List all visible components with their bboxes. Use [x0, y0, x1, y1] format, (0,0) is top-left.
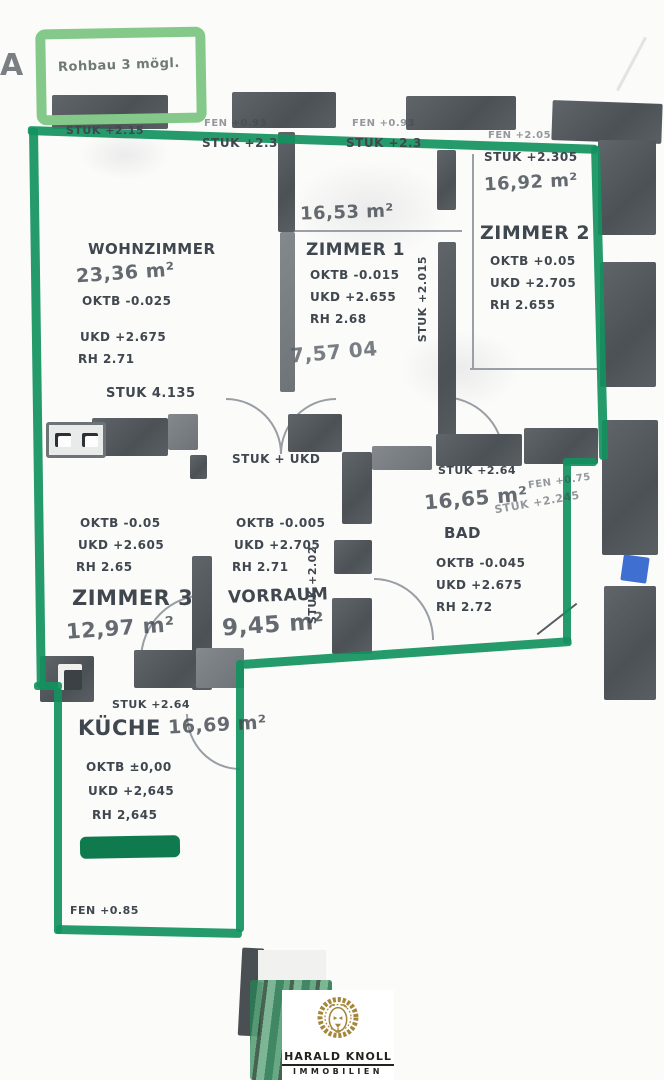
stub-cap — [258, 950, 326, 982]
annotation-stuk-mid: STUK 4.135 — [106, 386, 196, 401]
wall-segment — [600, 262, 656, 387]
logo-subtitle: IMMOBILIEN — [293, 1067, 383, 1076]
pencil-line — [286, 230, 462, 232]
outlet-dot — [82, 433, 98, 447]
outline-kitchen-left — [54, 688, 62, 934]
room-area-vorraum: 9,45 m² — [221, 608, 325, 641]
zimmer3-oktb: OKTB -0.05 — [80, 516, 161, 530]
bad-ukd: UKD +2.675 — [436, 578, 522, 592]
zimmer1-note: 7,57 04 — [289, 336, 378, 368]
door-arc — [374, 578, 434, 640]
zimmer2-oktb: OKTB +0.05 — [490, 254, 576, 268]
annotation-stuk-vertical-1: STUK +2.015 — [416, 256, 429, 342]
wall-segment — [278, 132, 295, 232]
room-area-wohnzimmer: 23,36 m² — [75, 259, 175, 288]
annotation-stuk-1: STUK +2.3 — [202, 136, 278, 150]
wall-segment — [288, 414, 342, 452]
wall-segment — [168, 414, 198, 450]
outline-kitchen-bottom — [56, 925, 242, 938]
bad-oktb: OKTB -0.045 — [436, 556, 525, 570]
outlet-dot — [55, 433, 71, 447]
zimmer1-rh: RH 2.68 — [310, 312, 367, 326]
wohnzimmer-ukd: UKD +2.675 — [80, 330, 166, 344]
lion-icon — [307, 990, 369, 1050]
bad-fen: FEN +0.75 — [528, 472, 592, 492]
logo-name: HARALD KNOLL — [282, 1050, 394, 1066]
annotation-stuk-2: STUK +2.3 — [346, 136, 422, 150]
zimmer2-fen: FEN +2.05 — [488, 130, 551, 141]
room-name-bad: BAD — [444, 524, 481, 542]
wall-segment — [406, 96, 516, 130]
room-name-vorraum: VORRAUM — [228, 584, 329, 607]
green-marker-redaction — [80, 835, 180, 859]
zimmer3-rh: RH 2.65 — [76, 560, 133, 574]
blue-mark — [620, 554, 649, 583]
room-area-zimmer1: 16,53 m² — [300, 200, 395, 224]
bad-stuk: STUK +2.64 — [438, 464, 516, 477]
wall-segment — [598, 140, 656, 235]
pencil-line — [470, 368, 598, 370]
kueche-rh: RH 2,645 — [92, 808, 157, 822]
wohnzimmer-rh: RH 2.71 — [78, 352, 135, 366]
zimmer2-stuk: STUK +2.305 — [484, 150, 578, 164]
wall-segment — [437, 150, 456, 210]
wall-segment — [334, 540, 372, 574]
wall-segment — [190, 455, 207, 479]
pencil-line — [472, 154, 474, 370]
outline-left — [29, 128, 46, 688]
wall-segment — [602, 420, 658, 555]
zimmer2-rh: RH 2.655 — [490, 298, 555, 312]
wall-segment — [438, 242, 456, 460]
broker-logo: HARALD KNOLL IMMOBILIEN — [282, 990, 394, 1080]
note-box — [35, 27, 207, 126]
vorraum-oktb: OKTB -0.005 — [236, 516, 325, 530]
wall-segment — [342, 452, 372, 524]
annotation-stuk-top-left: STUK +2.15 — [66, 124, 144, 137]
wall-segment — [280, 232, 295, 392]
room-name-kueche: KÜCHE — [78, 716, 161, 740]
wall-segment — [604, 586, 656, 700]
floorplan-scan: Rohbau 3 mögl. A STUK +2.15 FEN +0.93 ST… — [0, 0, 664, 1080]
zimmer1-oktb: OKTB -0.015 — [310, 268, 399, 282]
zimmer1-ukd: UKD +2.655 — [310, 290, 396, 304]
annotation-fen-1: FEN +0.93 — [204, 118, 267, 129]
room-name-zimmer2: ZIMMER 2 — [480, 222, 590, 244]
wall-segment — [332, 598, 372, 654]
wall-segment — [436, 434, 522, 466]
corner-letter: A — [0, 48, 24, 83]
zimmer3-ukd: UKD +2.605 — [78, 538, 164, 552]
room-name-zimmer3: ZIMMER 3 — [72, 586, 193, 610]
kueche-oktb: OKTB ±0,00 — [86, 760, 172, 774]
bad-rh: RH 2.72 — [436, 600, 493, 614]
zimmer2-ukd: UKD +2.705 — [490, 276, 576, 290]
outlet-icon — [46, 422, 106, 458]
kueche-fen: FEN +0.85 — [70, 904, 139, 917]
wall-segment — [551, 100, 662, 144]
wohnzimmer-oktb: OKTB -0.025 — [82, 294, 171, 308]
scan-streak — [616, 37, 647, 91]
vorraum-rh: RH 2.71 — [232, 560, 289, 574]
vorraum-ukd: UKD +2.705 — [234, 538, 320, 552]
room-area-kueche: 16,69 m² — [167, 711, 267, 738]
room-area-zimmer2: 16,92 m² — [484, 170, 579, 196]
outline-right-jog — [563, 458, 597, 466]
door-leaf-line — [537, 603, 578, 635]
wall-segment — [372, 446, 432, 470]
door-arc — [226, 398, 282, 454]
room-name-wohnzimmer: WOHNZIMMER — [88, 240, 216, 258]
annotation-stuk-ukd: STUK + UKD — [232, 452, 320, 466]
kueche-ukd: UKD +2,645 — [88, 784, 174, 798]
kueche-stuk: STUK +2.64 — [112, 698, 190, 711]
room-name-zimmer1: ZIMMER 1 — [306, 240, 405, 260]
outline-mid-bottom — [242, 637, 572, 669]
annotation-fen-2: FEN +0.93 — [352, 118, 415, 129]
outline-kitchen-right — [236, 660, 244, 932]
